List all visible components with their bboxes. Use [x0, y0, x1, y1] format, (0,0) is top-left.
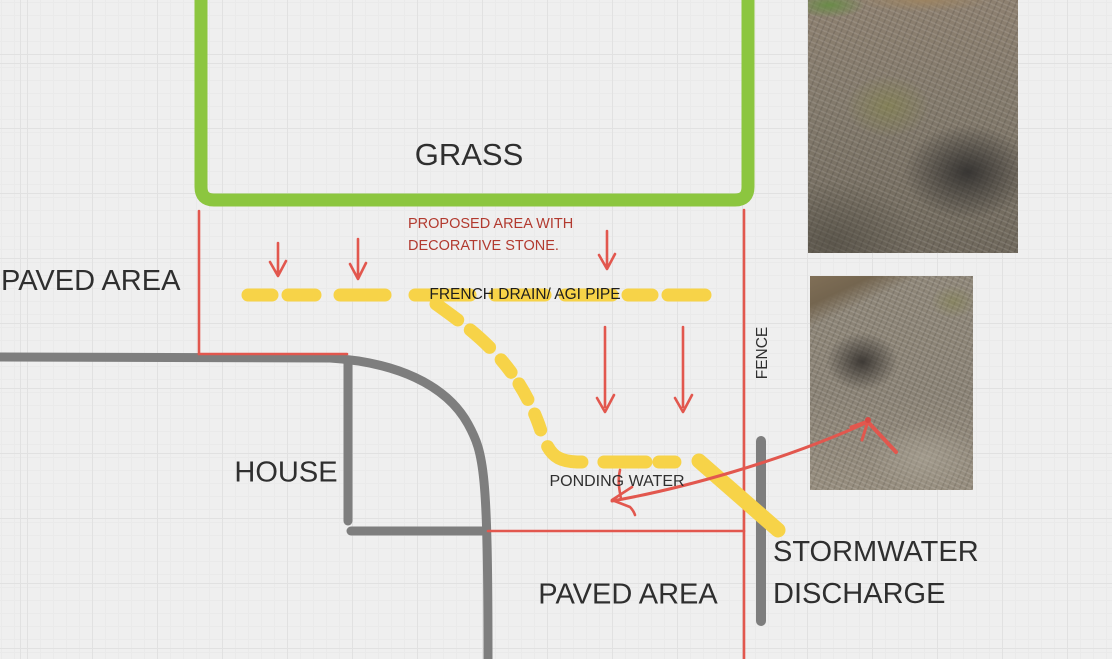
flow-arrow-5 [675, 327, 692, 412]
flow-arrow-3 [599, 231, 615, 269]
site-photo-top [808, 0, 1018, 253]
grass-label: GRASS [415, 137, 524, 173]
flow-arrow-4 [597, 327, 614, 412]
ponding-water-label: PONDING WATER [549, 473, 684, 491]
stormwater-discharge-label: STORMWATER DISCHARGE [773, 531, 979, 615]
house-wall-top-and-curve [0, 357, 488, 659]
fence-label: FENCE [754, 327, 772, 380]
stormwater-discharge-pipe [699, 461, 778, 530]
stormwater-line2: DISCHARGE [773, 573, 979, 615]
paved-area-bottom-label: PAVED AREA [538, 579, 717, 612]
french-drain-label: FRENCH DRAIN/ AGI PIPE [429, 286, 620, 304]
site-photo-bottom [810, 276, 973, 490]
drain-branch-dashed-curve [436, 304, 701, 462]
stormwater-line1: STORMWATER [773, 531, 979, 573]
proposed-area-note: PROPOSED AREA WITH DECORATIVE STONE. [408, 213, 573, 257]
flow-arrow-1 [270, 243, 286, 276]
flow-arrow-2 [350, 239, 366, 279]
proposed-note-line2: DECORATIVE STONE. [408, 235, 573, 257]
paved-area-left-label: PAVED AREA [1, 265, 180, 298]
drawing-canvas: GRASS PAVED AREA HOUSE PAVED AREA STORMW… [0, 0, 1112, 659]
house-label: HOUSE [234, 457, 337, 490]
proposed-note-line1: PROPOSED AREA WITH [408, 213, 573, 235]
